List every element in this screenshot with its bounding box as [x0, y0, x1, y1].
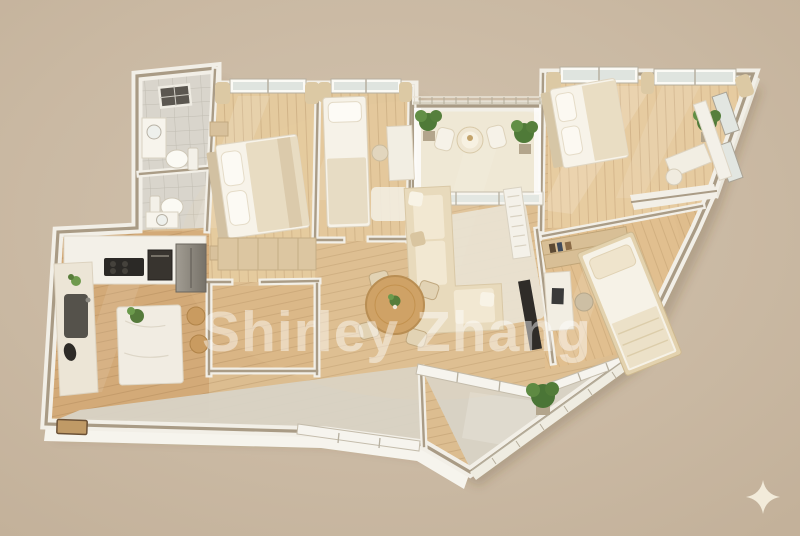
- plant-pot: [519, 144, 531, 154]
- toilet-bowl: [166, 150, 188, 168]
- faucet: [86, 298, 91, 303]
- plant-leaves: [526, 121, 538, 133]
- island-top: [117, 305, 184, 385]
- curtain: [399, 82, 412, 102]
- desk-chair: [666, 169, 682, 185]
- wardrobe: [218, 238, 316, 270]
- burner: [110, 261, 116, 267]
- table-decor: [467, 135, 473, 141]
- counter-plant: [68, 274, 74, 280]
- kitchen-island: [117, 305, 184, 385]
- island-plant: [127, 307, 135, 315]
- front-door: [57, 419, 87, 434]
- burner: [110, 268, 116, 274]
- floor-plan-render: Shirley Zhang: [0, 0, 800, 536]
- plant-leaves: [545, 382, 559, 396]
- curtain: [215, 82, 230, 104]
- plant-leaves: [415, 110, 427, 122]
- sofa-cushion: [415, 240, 447, 286]
- desk-top: [387, 125, 415, 180]
- master-bed: [205, 134, 309, 240]
- bathroom-window: [159, 84, 191, 107]
- wardrobe-body: [218, 238, 316, 270]
- kitchen-sink: [64, 294, 88, 338]
- double-bed: [540, 78, 629, 170]
- sofa-pillow: [408, 191, 424, 207]
- plant-leaves: [511, 120, 523, 132]
- toilet: [166, 148, 198, 170]
- plant-leaves: [526, 383, 540, 397]
- pillow: [220, 150, 245, 186]
- sink-basin: [157, 215, 168, 226]
- pillow: [226, 190, 251, 226]
- single-bed: [323, 96, 371, 227]
- burner: [122, 268, 128, 274]
- desk-chair: [372, 145, 388, 161]
- sheer-curtain: [534, 108, 541, 194]
- floor-plan-screenshot: Shirley Zhang: [0, 0, 800, 536]
- plant-leaves: [430, 110, 442, 122]
- sink-basin: [147, 125, 161, 139]
- plant-pot: [423, 131, 435, 141]
- curtain: [641, 72, 654, 94]
- blanket: [327, 157, 368, 224]
- nightstand: [210, 122, 228, 136]
- burner: [122, 261, 128, 267]
- toilet-tank: [188, 148, 198, 170]
- desk: [387, 125, 415, 180]
- pillow: [328, 101, 362, 122]
- watermark-text: Shirley Zhang: [202, 300, 592, 364]
- curtain: [305, 82, 319, 104]
- rug: [371, 187, 408, 221]
- oven: [148, 250, 172, 280]
